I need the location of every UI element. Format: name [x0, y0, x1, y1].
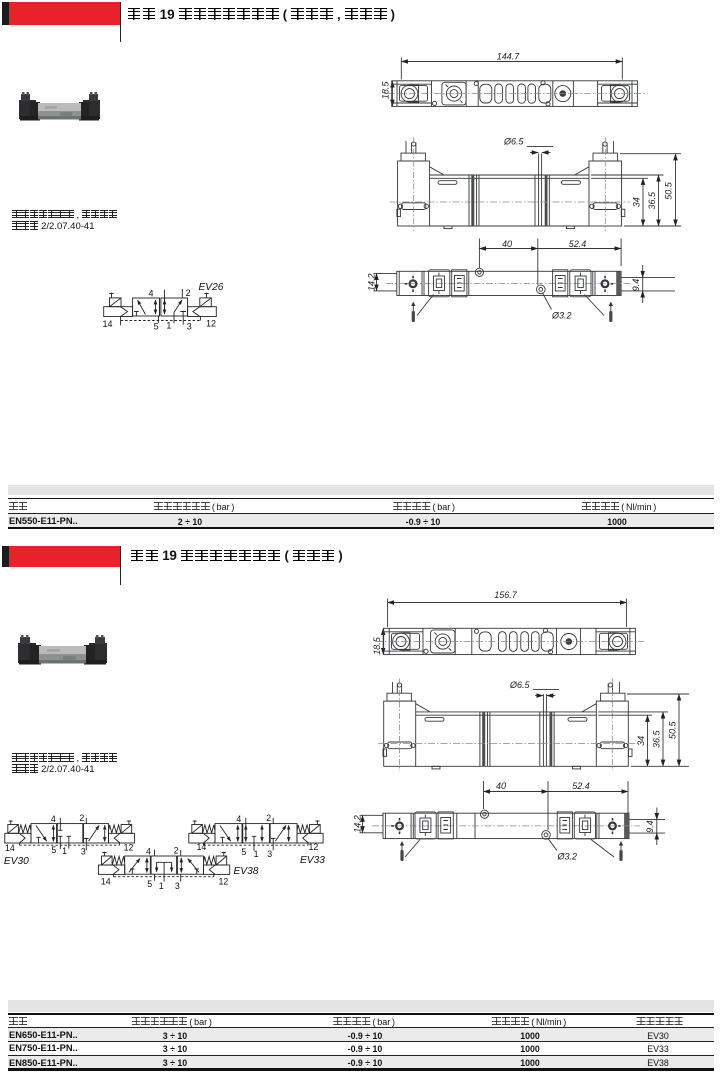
- svg-text:4: 4: [146, 847, 151, 857]
- svg-text:14.2: 14.2: [366, 273, 376, 291]
- svg-text:1: 1: [62, 846, 67, 856]
- svg-text:14: 14: [103, 319, 113, 329]
- svg-text:14: 14: [101, 877, 111, 887]
- svg-text:Ø6.5: Ø6.5: [509, 680, 531, 690]
- svg-text:36.5: 36.5: [647, 191, 657, 210]
- svg-text:144.7: 144.7: [497, 52, 521, 62]
- svg-text:4: 4: [148, 288, 153, 298]
- svg-text:Ø6.5: Ø6.5: [503, 137, 525, 147]
- svg-text:1: 1: [159, 881, 164, 891]
- svg-text:3: 3: [267, 849, 272, 859]
- svg-text:50.5: 50.5: [667, 721, 677, 740]
- svg-text:9.4: 9.4: [645, 820, 655, 833]
- svg-text:EV30: EV30: [4, 856, 29, 867]
- svg-text:3: 3: [175, 881, 180, 891]
- svg-text:14.2: 14.2: [352, 815, 362, 833]
- svg-text:3: 3: [187, 322, 192, 332]
- svg-text:2: 2: [79, 813, 84, 823]
- svg-text:12: 12: [219, 877, 229, 887]
- svg-text:EV38: EV38: [234, 866, 259, 877]
- svg-text:40: 40: [496, 781, 506, 791]
- svg-text:14: 14: [5, 843, 15, 853]
- svg-text:156.7: 156.7: [494, 590, 518, 600]
- svg-text:36.5: 36.5: [652, 729, 662, 748]
- svg-text:3: 3: [81, 846, 86, 856]
- svg-text:18.5: 18.5: [372, 636, 382, 655]
- svg-text:12: 12: [206, 319, 216, 329]
- svg-text:4: 4: [236, 814, 241, 824]
- svg-text:18.5: 18.5: [381, 81, 391, 100]
- svg-text:2: 2: [186, 288, 191, 298]
- svg-text:40: 40: [502, 239, 512, 249]
- svg-text:34: 34: [632, 197, 642, 207]
- svg-text:52.4: 52.4: [569, 239, 587, 249]
- svg-text:34: 34: [636, 736, 646, 746]
- svg-text:EV33: EV33: [300, 855, 325, 866]
- svg-text:EV26: EV26: [199, 282, 224, 293]
- svg-text:1: 1: [166, 320, 171, 330]
- svg-text:2: 2: [266, 813, 271, 823]
- svg-text:4: 4: [51, 814, 56, 824]
- svg-text:5: 5: [154, 321, 159, 331]
- svg-text:9.4: 9.4: [631, 279, 641, 292]
- svg-text:2: 2: [174, 846, 179, 856]
- svg-text:5: 5: [51, 845, 56, 855]
- svg-text:5: 5: [147, 879, 152, 889]
- svg-text:Ø3.2: Ø3.2: [557, 852, 578, 862]
- svg-text:52.4: 52.4: [572, 781, 590, 791]
- svg-text:Ø3.2: Ø3.2: [551, 311, 572, 321]
- svg-text:50.5: 50.5: [664, 181, 674, 200]
